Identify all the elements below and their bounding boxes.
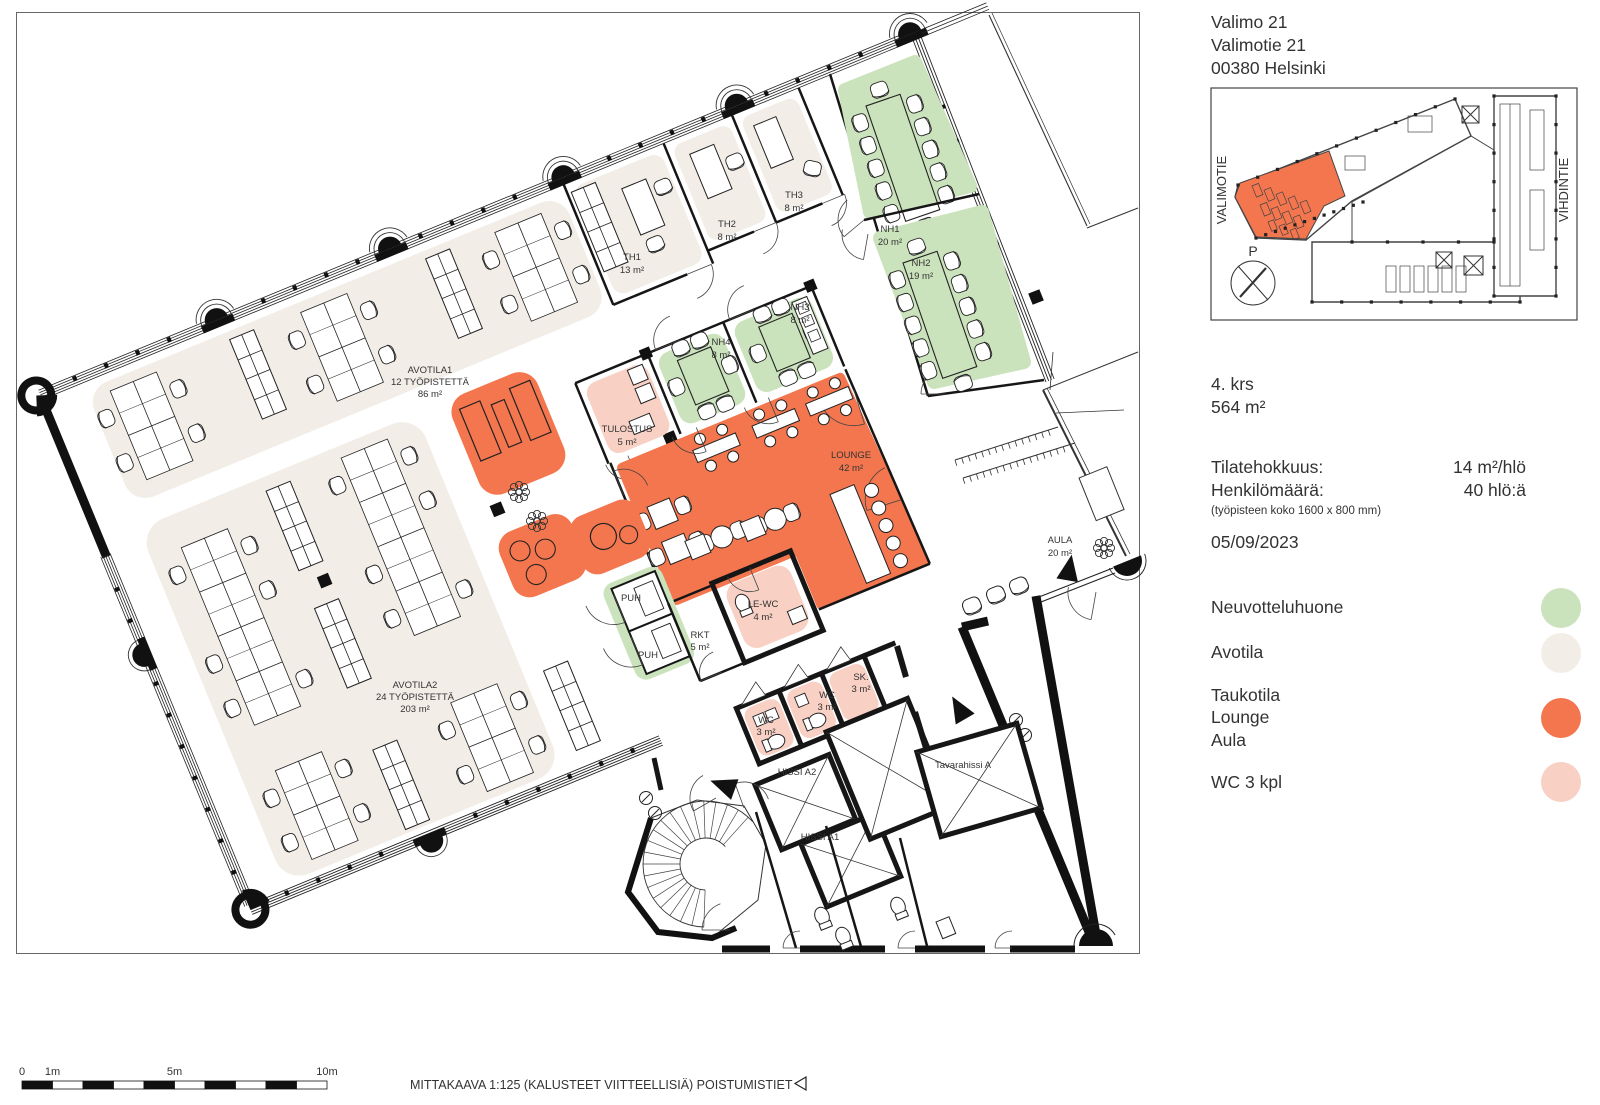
svg-text:PUH: PUH bbox=[638, 650, 658, 661]
svg-text:VALIMOTIE: VALIMOTIE bbox=[1214, 155, 1229, 224]
svg-text:LOUNGE: LOUNGE bbox=[831, 450, 871, 461]
svg-text:Tilatehokkuus:: Tilatehokkuus: bbox=[1211, 457, 1323, 477]
svg-text:20 m²: 20 m² bbox=[1048, 548, 1072, 559]
svg-text:05/09/2023: 05/09/2023 bbox=[1211, 532, 1299, 552]
svg-text:4 m²: 4 m² bbox=[754, 612, 773, 623]
svg-text:TH2: TH2 bbox=[718, 219, 736, 230]
svg-text:LE-WC: LE-WC bbox=[748, 599, 779, 610]
svg-text:3 m²: 3 m² bbox=[852, 684, 871, 695]
svg-text:NH1: NH1 bbox=[880, 224, 899, 235]
svg-text:Aula: Aula bbox=[1211, 730, 1246, 750]
svg-text:Taukotila: Taukotila bbox=[1211, 685, 1280, 705]
svg-text:Avotila: Avotila bbox=[1211, 642, 1263, 662]
svg-text:1m: 1m bbox=[45, 1066, 60, 1078]
svg-text:13 m²: 13 m² bbox=[620, 265, 644, 276]
svg-text:NH4: NH4 bbox=[711, 337, 730, 348]
svg-text:Tavarahissi A: Tavarahissi A bbox=[935, 760, 992, 771]
svg-text:(työpisteen koko 1600 x 800 mm: (työpisteen koko 1600 x 800 mm) bbox=[1211, 505, 1381, 517]
svg-text:NH3: NH3 bbox=[790, 302, 809, 313]
svg-text:564 m²: 564 m² bbox=[1211, 397, 1266, 417]
svg-text:WC: WC bbox=[819, 690, 835, 701]
svg-text:42 m²: 42 m² bbox=[839, 463, 863, 474]
svg-text:HISSI A2: HISSI A2 bbox=[778, 767, 817, 778]
svg-text:Lounge: Lounge bbox=[1211, 707, 1269, 727]
svg-text:Valimotie 21: Valimotie 21 bbox=[1211, 35, 1306, 55]
svg-text:12 TYÖPISTETTÄ: 12 TYÖPISTETTÄ bbox=[391, 377, 470, 388]
svg-text:VIHDINTIE: VIHDINTIE bbox=[1556, 158, 1571, 223]
svg-text:SK.: SK. bbox=[853, 672, 868, 683]
svg-text:TH1: TH1 bbox=[623, 252, 641, 263]
svg-text:Henkilömäärä:: Henkilömäärä: bbox=[1211, 480, 1324, 500]
svg-text:3 m²: 3 m² bbox=[757, 727, 776, 738]
svg-text:8 m²: 8 m² bbox=[785, 203, 804, 214]
svg-text:WC: WC bbox=[758, 715, 774, 726]
svg-text:8 m²: 8 m² bbox=[718, 232, 737, 243]
svg-text:86 m²: 86 m² bbox=[418, 389, 442, 400]
svg-text:5 m²: 5 m² bbox=[618, 437, 637, 448]
svg-text:AULA: AULA bbox=[1048, 535, 1073, 546]
svg-text:4. krs: 4. krs bbox=[1211, 374, 1254, 394]
svg-text:RKT: RKT bbox=[691, 630, 710, 641]
svg-text:NH2: NH2 bbox=[911, 258, 930, 269]
svg-text:5m: 5m bbox=[167, 1066, 182, 1078]
svg-text:20 m²: 20 m² bbox=[878, 237, 902, 248]
svg-text:MITTAKAAVA 1:125 (KALUSTEET V: MITTAKAAVA 1:125 (KALUSTEET VIITTEELLISI… bbox=[410, 1078, 793, 1092]
svg-text:PUH: PUH bbox=[621, 593, 641, 604]
svg-text:Neuvotteluhuone: Neuvotteluhuone bbox=[1211, 597, 1343, 617]
svg-text:Valimo 21: Valimo 21 bbox=[1211, 12, 1288, 32]
svg-text:8 m²: 8 m² bbox=[712, 350, 731, 361]
svg-text:0: 0 bbox=[19, 1066, 25, 1078]
svg-text:14 m²/hlö: 14 m²/hlö bbox=[1453, 457, 1526, 477]
svg-text:40 hlö:ä: 40 hlö:ä bbox=[1464, 480, 1527, 500]
svg-text:10m: 10m bbox=[316, 1066, 337, 1078]
svg-text:203 m²: 203 m² bbox=[400, 704, 430, 715]
svg-text:TULOSTUS: TULOSTUS bbox=[602, 424, 653, 435]
svg-text:3 m²: 3 m² bbox=[818, 702, 837, 713]
svg-text:TH3: TH3 bbox=[785, 190, 803, 201]
svg-text:AVOTILA2: AVOTILA2 bbox=[393, 680, 438, 691]
svg-text:00380 Helsinki: 00380 Helsinki bbox=[1211, 58, 1326, 78]
svg-text:5 m²: 5 m² bbox=[691, 642, 710, 653]
svg-text:HISSI A1: HISSI A1 bbox=[801, 832, 840, 843]
svg-text:P: P bbox=[1248, 243, 1257, 259]
svg-text:24 TYÖPISTETTÄ: 24 TYÖPISTETTÄ bbox=[376, 692, 455, 703]
svg-text:8 m²: 8 m² bbox=[791, 315, 810, 326]
svg-text:WC 3 kpl: WC 3 kpl bbox=[1211, 772, 1282, 792]
svg-text:AVOTILA1: AVOTILA1 bbox=[408, 365, 453, 376]
svg-text:19 m²: 19 m² bbox=[909, 271, 933, 282]
